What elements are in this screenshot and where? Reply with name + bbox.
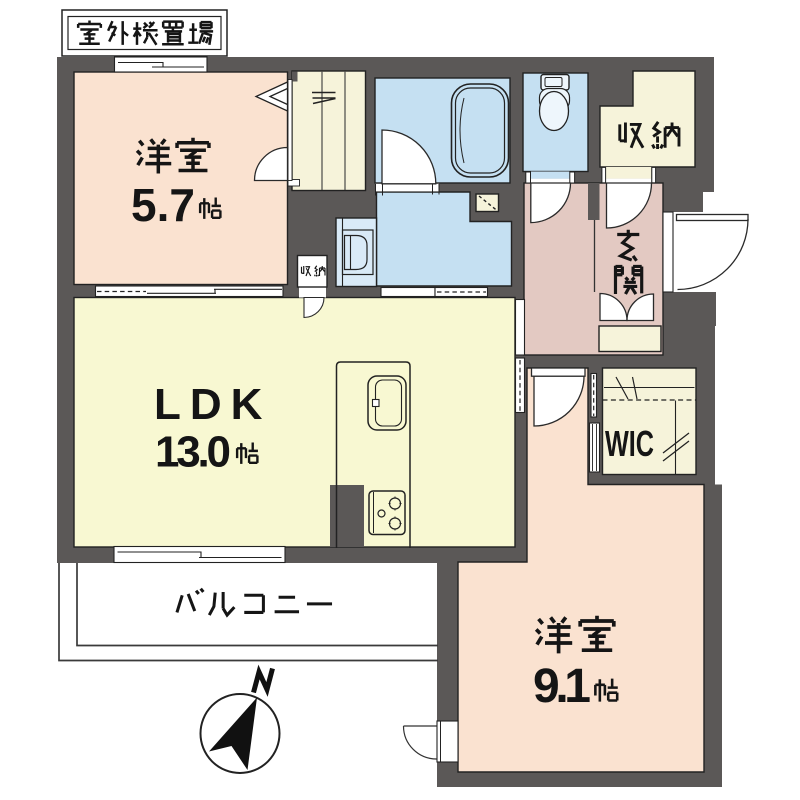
svg-text:WIC: WIC (605, 423, 654, 464)
svg-text:13.0: 13.0 (155, 428, 231, 477)
svg-text:5.7: 5.7 (131, 179, 195, 231)
svg-text:9.1: 9.1 (533, 660, 591, 713)
svg-text:LDK: LDK (154, 380, 271, 429)
